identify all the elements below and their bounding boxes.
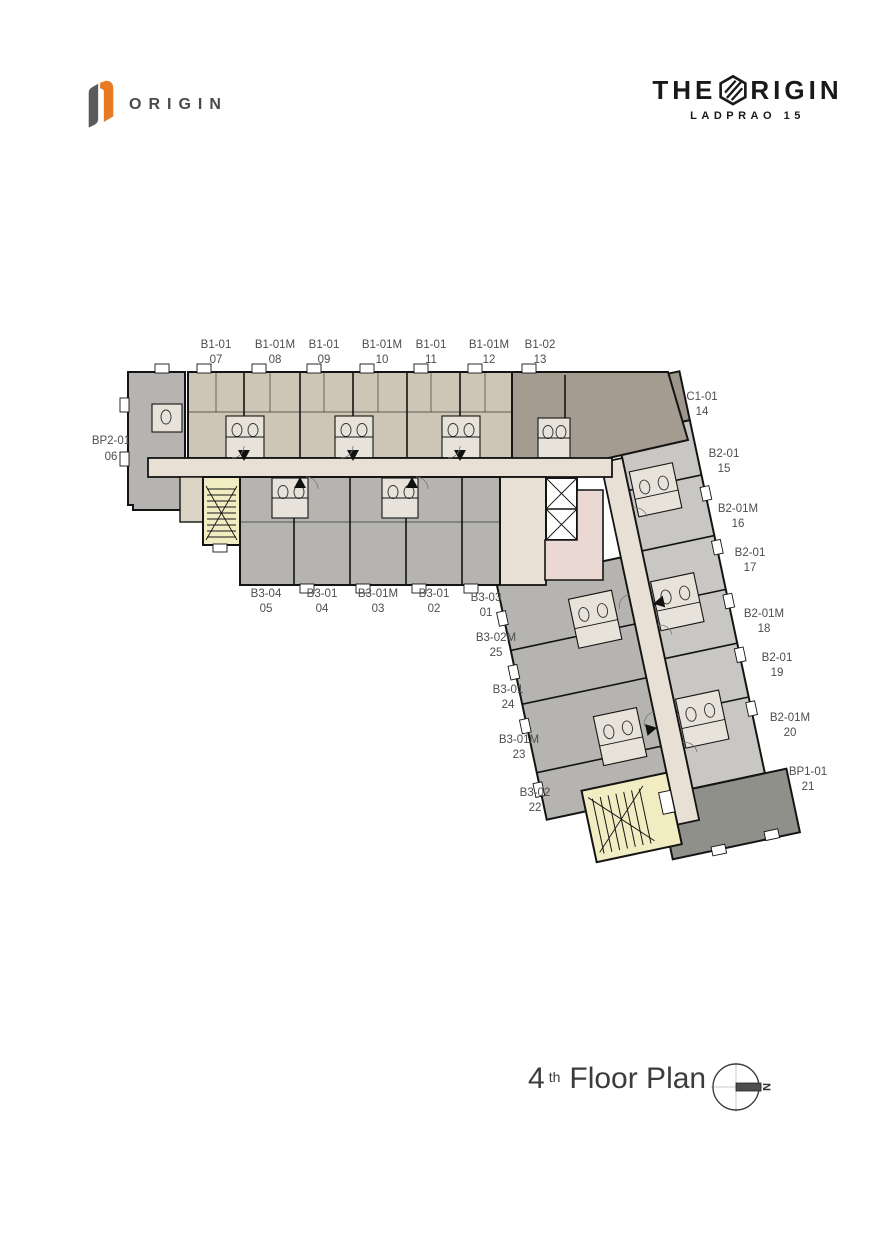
unit-label-13: B1-0213 bbox=[525, 339, 556, 366]
floor-plan-title: 4thFloor Plan bbox=[528, 1062, 706, 1096]
unit-label-08: B1-01M08 bbox=[255, 339, 295, 366]
unit-label-09: B1-0109 bbox=[309, 339, 340, 366]
unit-label-19: B2-0119 bbox=[762, 652, 793, 679]
unit-label-02: B3-0102 bbox=[419, 588, 450, 615]
unit-label-18: B2-01M18 bbox=[744, 608, 784, 635]
unit-label-20: B2-01M20 bbox=[770, 712, 810, 739]
unit-label-11: B1-0111 bbox=[416, 339, 447, 366]
unit-label-03: B3-01M03 bbox=[358, 588, 398, 615]
floor-plan-svg: B1-0107 B1-01M08 B1-0109 B1-01M10 B1-011… bbox=[0, 0, 877, 1241]
page: ORIGIN THE RIGIN LADPRAO 15 bbox=[0, 0, 877, 1241]
wing-horizontal bbox=[120, 364, 688, 593]
unit-label-10: B1-01M10 bbox=[362, 339, 402, 366]
unit-label-15: B2-0115 bbox=[709, 448, 740, 475]
north-letter: N bbox=[760, 1083, 772, 1091]
unit-label-05: B3-0405 bbox=[251, 588, 282, 615]
unit-label-12: B1-01M12 bbox=[469, 339, 509, 366]
floor-ordinal: th bbox=[549, 1069, 561, 1085]
unit-label-17: B2-0117 bbox=[735, 547, 766, 574]
unit-label-16: B2-01M16 bbox=[718, 503, 758, 530]
elevator-lobby bbox=[500, 477, 546, 585]
unit-label-21: BP1-0121 bbox=[789, 766, 827, 793]
unit-region-bp2-01 bbox=[128, 372, 185, 510]
floor-number: 4 bbox=[528, 1062, 545, 1095]
unit-label-14: C1-0114 bbox=[686, 391, 717, 418]
unit-label-04: B3-0104 bbox=[307, 588, 338, 615]
unit-label-24: B3-0124 bbox=[493, 684, 524, 711]
north-compass-icon: N bbox=[708, 1058, 774, 1116]
unit-label-07: B1-0107 bbox=[201, 339, 232, 366]
corridor-horizontal bbox=[148, 458, 612, 477]
floor-text: Floor Plan bbox=[569, 1062, 706, 1095]
